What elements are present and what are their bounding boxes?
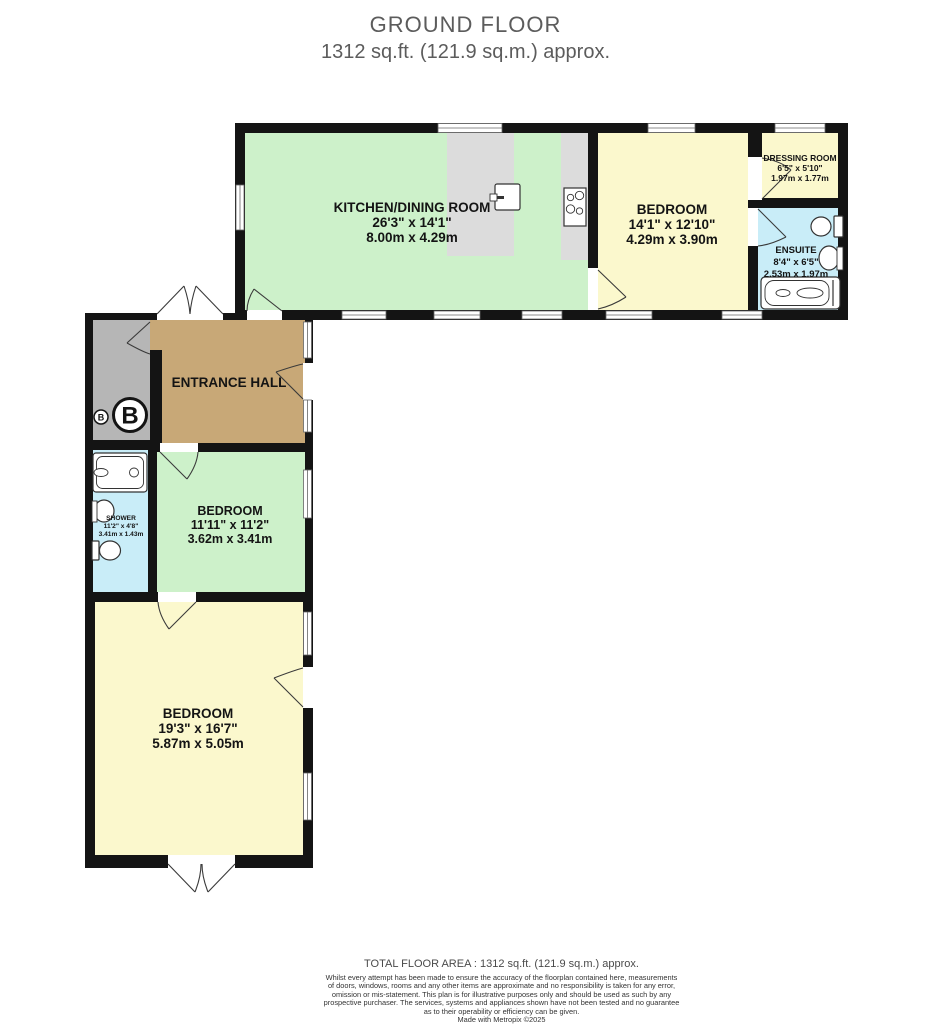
svg-text:B: B [98, 413, 105, 423]
boiler-icon-large: B [114, 399, 147, 432]
kitchen-size-m: 8.00m x 4.29m [366, 230, 458, 245]
bedroom2-label: BEDROOM [197, 504, 262, 518]
floorplan-drawing: B B KITCHEN/DINING ROOM 26'3" x 14'1" 8.… [0, 0, 931, 1024]
bath-icon [761, 277, 840, 309]
room-hall-door-gap [150, 320, 162, 350]
svg-text:B: B [121, 403, 138, 430]
floorplan-page: GROUND FLOOR 1312 sq.ft. (121.9 sq.m.) a… [0, 0, 931, 1024]
bedroom2-size-ft: 11'11" x 11'2" [191, 518, 269, 532]
kitchen-sink-icon [490, 184, 520, 210]
dressing-size-m: 1.97m x 1.77m [771, 173, 829, 183]
shower-toilet-icon [92, 541, 121, 560]
kitchen-size-ft: 26'3" x 14'1" [372, 215, 451, 230]
bedroom1-label: BEDROOM [637, 202, 708, 217]
footer-block: TOTAL FLOOR AREA : 1312 sq.ft. (121.9 sq… [0, 958, 931, 1024]
bedroom3-label: BEDROOM [163, 706, 234, 721]
ensuite-basin-icon [819, 246, 843, 270]
shower-label: SHOWER [106, 515, 136, 522]
dressing-label: DRESSING ROOM [763, 153, 836, 163]
metropix-credit: Made with Metropix ©2025 [72, 1016, 931, 1024]
bedroom1-size-ft: 14'1" x 12'10" [629, 217, 716, 232]
bedroom3-size-m: 5.87m x 5.05m [152, 736, 244, 751]
boiler-icon-small: B [94, 410, 108, 424]
ensuite-size-m: 2.53m x 1.97m [764, 269, 828, 280]
total-floor-area: TOTAL FLOOR AREA : 1312 sq.ft. (121.9 sq… [72, 958, 931, 970]
kitchen-label: KITCHEN/DINING ROOM [334, 200, 491, 215]
hob-icon [564, 188, 586, 226]
ensuite-size-ft: 8'4" x 6'5" [773, 257, 818, 268]
bedroom2-size-m: 3.62m x 3.41m [188, 532, 273, 546]
shower-tray-icon [93, 453, 147, 492]
bedroom3-size-ft: 19'3" x 16'7" [158, 721, 237, 736]
shower-size-ft: 11'2" x 4'8" [104, 523, 139, 530]
ensuite-label: ENSUITE [775, 245, 816, 256]
ensuite-toilet-icon [811, 216, 843, 237]
shower-size-m: 3.41m x 1.43m [99, 531, 144, 538]
bedroom1-size-m: 4.29m x 3.90m [626, 232, 718, 247]
hall-label: ENTRANCE HALL [172, 375, 287, 390]
dressing-size-ft: 6'5" x 5'10" [777, 163, 822, 173]
